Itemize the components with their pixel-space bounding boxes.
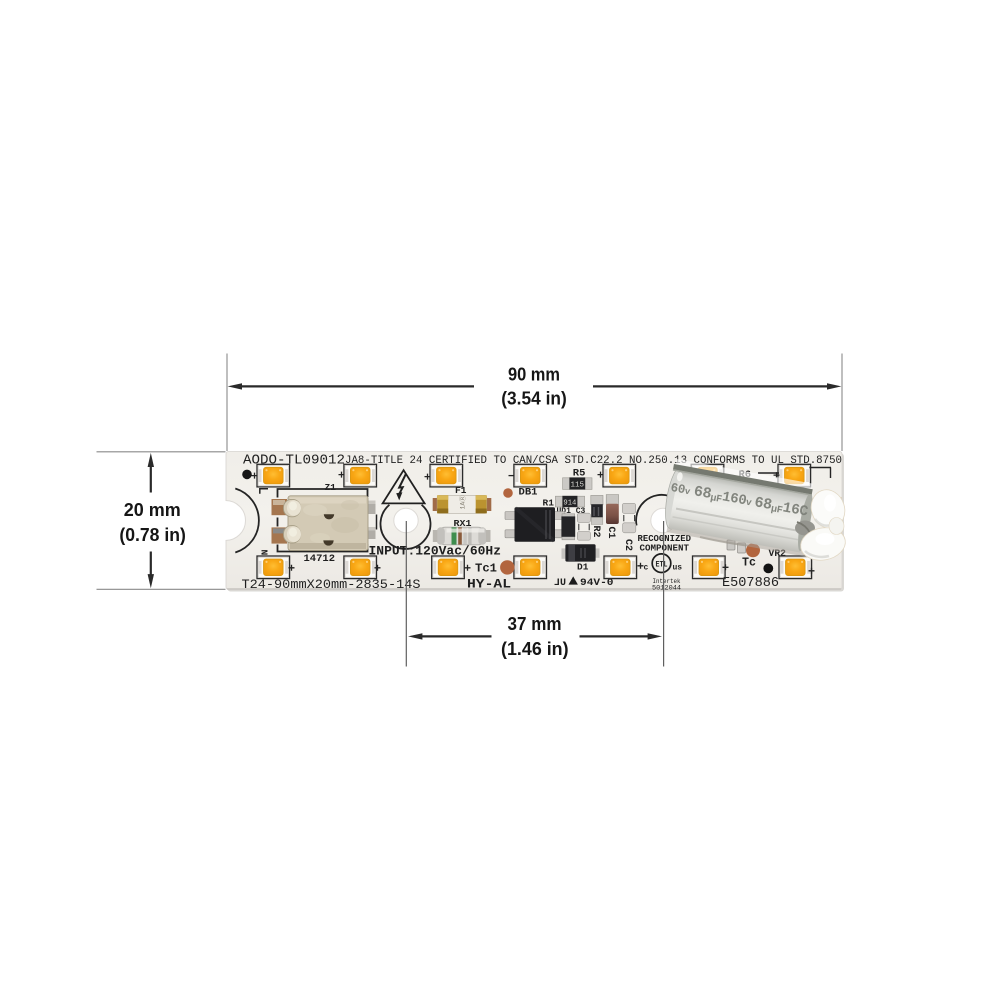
svg-text:(3.54 in): (3.54 in)	[501, 388, 567, 409]
svg-text:HY-AL: HY-AL	[467, 577, 511, 592]
svg-text:(0.78 in): (0.78 in)	[119, 524, 186, 545]
svg-text:Tc1: Tc1	[475, 563, 497, 576]
svg-text:D1: D1	[577, 561, 589, 572]
svg-text:R1: R1	[543, 498, 555, 509]
svg-text:DB1: DB1	[519, 488, 538, 499]
svg-text:ETL: ETL	[656, 560, 668, 569]
svg-text:37 mm: 37 mm	[508, 613, 562, 634]
svg-text:UL: UL	[554, 578, 566, 589]
svg-text:914: 914	[563, 500, 576, 508]
svg-text:C2: C2	[622, 539, 633, 551]
svg-text:COMPONENT: COMPONENT	[640, 543, 690, 553]
svg-text:115: 115	[571, 482, 585, 490]
svg-text:c: c	[644, 564, 649, 573]
svg-text:5012044: 5012044	[652, 584, 681, 591]
svg-text:Z1: Z1	[325, 482, 337, 493]
svg-text:R2: R2	[590, 526, 601, 538]
svg-text:T24-90mmX20mm-2835-14S: T24-90mmX20mm-2835-14S	[242, 577, 421, 592]
svg-text:1AⓇ: 1AⓇ	[459, 495, 467, 510]
svg-text:us: us	[673, 564, 683, 573]
svg-text:90 mm: 90 mm	[508, 364, 560, 385]
svg-text:Tc: Tc	[742, 557, 756, 570]
svg-text:14712: 14712	[304, 554, 336, 565]
svg-text:N: N	[259, 550, 270, 556]
svg-text:C1: C1	[605, 527, 616, 539]
svg-text:(1.46 in): (1.46 in)	[501, 638, 569, 659]
svg-text:20 mm: 20 mm	[124, 499, 181, 520]
svg-text:E507886: E507886	[722, 575, 779, 591]
svg-text:JA8-TITLE 24 CERTIFIED TO CAN/: JA8-TITLE 24 CERTIFIED TO CAN/CSA STD.C2…	[345, 455, 842, 467]
